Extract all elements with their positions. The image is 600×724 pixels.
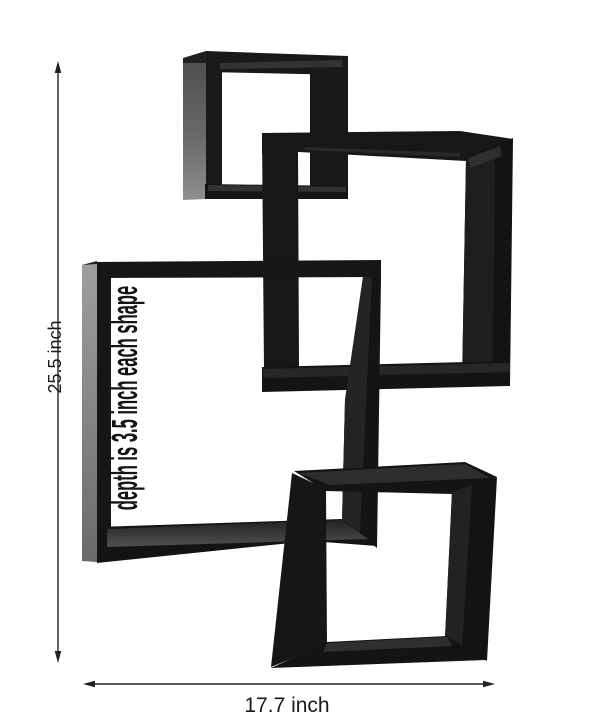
svg-text:17.7 inch: 17.7 inch	[244, 694, 329, 717]
svg-text:25.5 inch: 25.5 inch	[45, 320, 65, 393]
svg-text:depth is 3.5 inch each shape: depth is 3.5 inch each shape	[105, 286, 145, 510]
